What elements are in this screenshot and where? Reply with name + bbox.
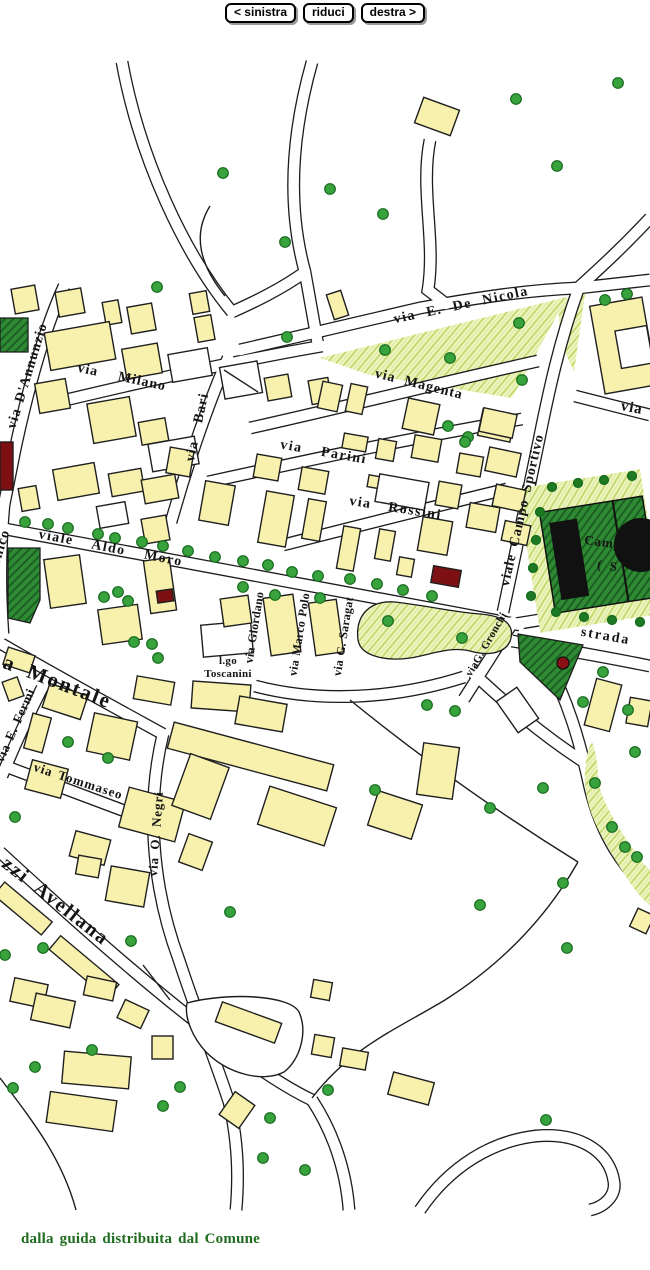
building: [415, 97, 460, 135]
tree-icon: [20, 517, 31, 528]
building: [253, 454, 282, 481]
building: [326, 290, 348, 319]
building: [86, 713, 137, 760]
building: [87, 397, 136, 444]
tree-icon: [613, 78, 624, 89]
map-viewer-page: < sinistra riduci destra >: [0, 0, 650, 1270]
pan-right-button[interactable]: destra >: [361, 3, 425, 23]
building: [466, 503, 500, 533]
tree-icon: [552, 608, 561, 617]
building: [31, 993, 76, 1028]
building: [375, 439, 396, 462]
building: [258, 786, 337, 846]
tree-icon: [63, 737, 74, 748]
tree-icon: [608, 616, 617, 625]
tree-icon: [548, 483, 557, 492]
building: [152, 1036, 173, 1059]
tree-icon: [8, 1083, 19, 1094]
tree-icon: [450, 706, 461, 717]
tree-icon: [10, 812, 21, 823]
building: [11, 285, 39, 314]
building: [44, 555, 86, 609]
tree-icon: [485, 803, 496, 814]
map-source-caption: dalla guida distribuita dal Comune: [21, 1231, 260, 1248]
tree-icon: [536, 508, 545, 517]
building: [411, 435, 442, 462]
zoom-out-button[interactable]: riduci: [303, 3, 354, 23]
building: [55, 288, 85, 317]
tree-icon: [158, 1101, 169, 1112]
street-label: ( S: [596, 557, 619, 575]
tree-icon: [126, 936, 137, 947]
tree-icon: [529, 564, 538, 573]
building: [117, 999, 149, 1028]
tree-icon: [372, 579, 383, 590]
tree-icon: [398, 585, 409, 596]
tree-icon: [30, 1062, 41, 1073]
tree-icon: [345, 574, 356, 585]
tree-icon: [287, 567, 298, 578]
monument-marker: [557, 657, 569, 669]
tree-icon: [630, 747, 641, 758]
street-label: l.go: [219, 655, 237, 667]
tree-icon: [38, 943, 49, 954]
tree-icon: [315, 593, 326, 604]
tree-icon: [532, 536, 541, 545]
building: [179, 834, 213, 871]
landmark-building: [0, 442, 13, 490]
tree-icon: [370, 785, 381, 796]
tree-icon: [558, 878, 569, 889]
building: [417, 743, 460, 800]
street-label: via: [619, 398, 644, 418]
pan-left-button[interactable]: < sinistra: [225, 3, 296, 23]
tree-icon: [514, 318, 525, 329]
building: [168, 348, 212, 383]
tree-icon: [325, 184, 336, 195]
building: [345, 384, 367, 415]
tree-icon: [541, 1115, 552, 1126]
building: [46, 1091, 117, 1131]
tree-icon: [527, 592, 536, 601]
building: [584, 678, 622, 731]
tree-icon: [183, 546, 194, 557]
street-label: strada: [580, 625, 632, 648]
map-pan-toolbar: < sinistra riduci destra >: [0, 3, 650, 23]
tree-icon: [632, 852, 643, 863]
building: [62, 1051, 132, 1089]
tree-icon: [623, 705, 634, 716]
tree-icon: [422, 700, 433, 711]
tree-icon: [210, 552, 221, 563]
tree-icon: [574, 479, 583, 488]
tree-icon: [378, 209, 389, 220]
tree-icon: [457, 633, 468, 644]
tree-icon: [313, 571, 324, 582]
landmark-building: [431, 566, 462, 588]
tree-icon: [580, 613, 589, 622]
building: [35, 379, 71, 414]
building: [76, 855, 102, 878]
tree-icon: [598, 667, 609, 678]
building: [96, 502, 128, 529]
tree-icon: [607, 822, 618, 833]
tree-icon: [427, 591, 438, 602]
tree-icon: [263, 560, 274, 571]
landmark-building: [156, 589, 174, 603]
building: [235, 696, 287, 732]
tree-icon: [0, 950, 10, 961]
building: [397, 557, 415, 577]
building: [264, 374, 292, 401]
tree-icon: [270, 590, 281, 601]
building: [194, 315, 215, 343]
tree-icon: [129, 637, 140, 648]
tree-icon: [600, 476, 609, 485]
building: [298, 467, 329, 494]
building: [105, 866, 149, 907]
tree-icon: [383, 616, 394, 627]
town-map-image: via E. De Nicolavia Magentavia Milanovia…: [0, 0, 650, 1270]
tree-icon: [517, 375, 528, 386]
tree-icon: [562, 943, 573, 954]
tree-icon: [380, 345, 391, 356]
tree-icon: [300, 1165, 311, 1176]
tree-icon: [323, 1085, 334, 1096]
building: [53, 463, 100, 501]
tree-icon: [258, 1153, 269, 1164]
tree-icon: [628, 472, 637, 481]
tree-icon: [590, 778, 601, 789]
tree-icon: [443, 421, 454, 432]
building: [199, 481, 235, 526]
tree-icon: [153, 653, 164, 664]
tree-icon: [475, 900, 486, 911]
building: [127, 303, 156, 334]
tree-icon: [620, 842, 631, 853]
building: [133, 676, 174, 705]
tree-icon: [600, 295, 611, 306]
building: [388, 1072, 435, 1105]
building: [311, 1034, 334, 1057]
building: [102, 300, 122, 325]
tree-icon: [282, 332, 293, 343]
tree-icon: [511, 94, 522, 105]
building: [108, 468, 144, 496]
building: [311, 979, 333, 1000]
building: [435, 481, 462, 509]
building: [368, 791, 423, 839]
tree-icon: [152, 282, 163, 293]
building: [630, 908, 650, 934]
building: [417, 517, 452, 556]
tree-icon: [265, 1113, 276, 1124]
building: [141, 474, 179, 504]
building: [189, 291, 209, 315]
building: [18, 486, 40, 512]
town-map-svg: via E. De Nicolavia Magentavia Milanovia…: [0, 0, 650, 1270]
tree-icon: [147, 639, 158, 650]
tree-icon: [238, 582, 249, 593]
building: [220, 361, 263, 399]
building: [615, 326, 650, 369]
tree-icon: [636, 618, 645, 627]
tree-icon: [99, 592, 110, 603]
tree-icon: [460, 437, 471, 448]
tree-icon: [622, 289, 633, 300]
tree-icon: [123, 596, 134, 607]
monument-icon: [557, 657, 569, 669]
tree-icon: [175, 1082, 186, 1093]
tree-icon: [225, 907, 236, 918]
tree-icon: [445, 353, 456, 364]
tree-icon: [538, 783, 549, 794]
tree-icon: [87, 1045, 98, 1056]
tree-icon: [280, 237, 291, 248]
street-label: Toscanini: [204, 668, 252, 680]
building: [402, 398, 440, 435]
tree-icon: [578, 697, 589, 708]
tree-icon: [103, 753, 114, 764]
building: [485, 447, 521, 477]
tree-icon: [113, 587, 124, 598]
tree-icon: [218, 168, 229, 179]
tree-icon: [552, 161, 563, 172]
tree-icon: [238, 556, 249, 567]
building: [456, 453, 483, 477]
building: [375, 529, 396, 561]
building: [340, 1048, 369, 1070]
